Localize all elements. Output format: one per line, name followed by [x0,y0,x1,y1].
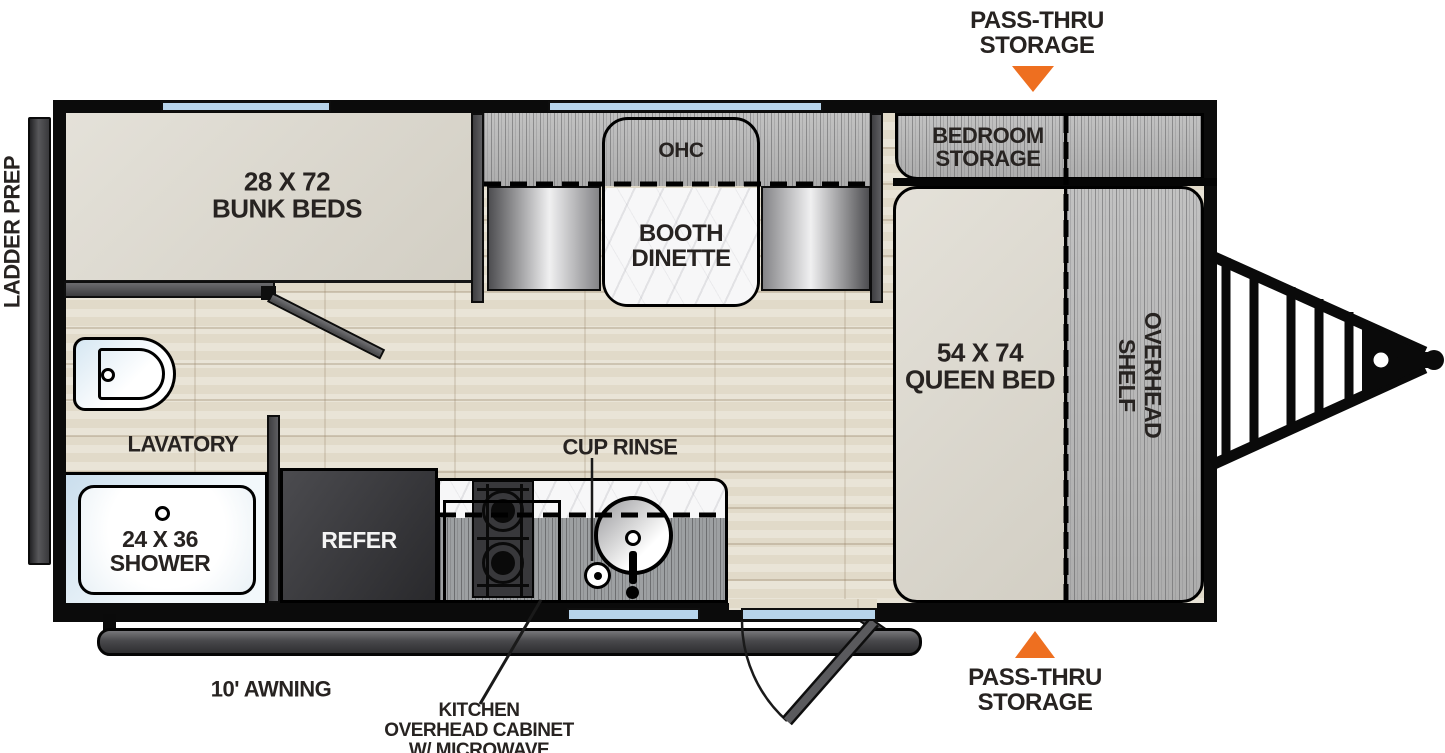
pass-thru-bottom-label: PASS-THRU STORAGE [968,665,1102,715]
kitchen-overhead-callout-label: KITCHEN OVERHEAD CABINET W/ MICROWAVE [384,701,573,753]
ohc-label: OHC [658,140,703,162]
pass-thru-arrow-bottom-icon [1015,631,1055,658]
floorplan-canvas: LADDER PREP PASS-THRU STORAGE PASS-THRU … [0,0,1445,753]
bedroom-storage-label: BEDROOM STORAGE [932,124,1043,170]
entry-door-panel [787,622,874,721]
entry-door-window [741,608,877,621]
hitch-coupler-ball [1424,350,1444,370]
window-kitchen [567,608,700,621]
kitchen-callout-leader-line [480,600,541,704]
overhead-shelf-label: OVERHEAD SHELF [1113,312,1165,438]
refer-label: REFER [321,528,396,552]
queen-bed-label: 54 X 74 QUEEN BED [905,340,1055,395]
pass-thru-top-label: PASS-THRU STORAGE [970,8,1104,58]
hitch-jack [1372,351,1390,369]
lavatory-label: LAVATORY [128,432,239,455]
linework-layer [0,0,1445,753]
pass-thru-arrow-top-icon [1012,66,1054,92]
window-bunk [161,101,331,112]
entry-door-swing-arc [742,620,787,721]
hitch-a-frame [1212,256,1444,465]
shower-label: 24 X 36 SHOWER [110,527,211,575]
booth-dinette-label: BOOTH DINETTE [631,221,730,271]
awning-label: 10' AWNING [211,677,331,700]
window-dinette [548,101,823,112]
cup-rinse-label: CUP RINSE [563,435,678,458]
bunk-beds-label: 28 X 72 BUNK BEDS [212,169,362,224]
ladder-prep-label: LADDER PREP [1,156,26,308]
